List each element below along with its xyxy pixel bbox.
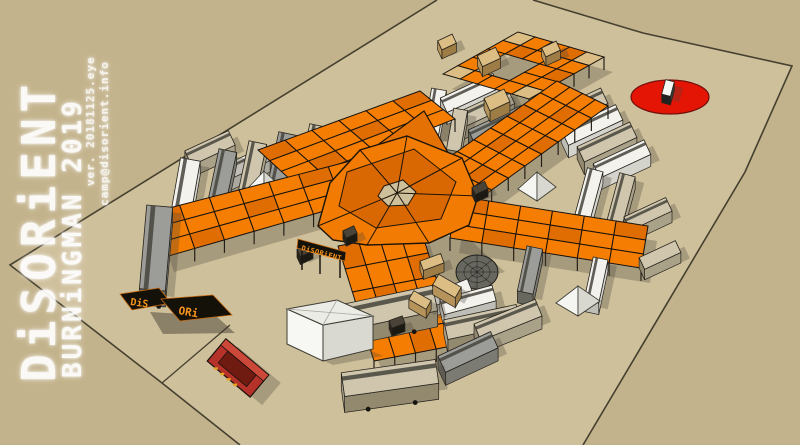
fallen-sign-text-left: DiS	[130, 296, 150, 310]
couch-side-lettering	[227, 378, 231, 380]
wheel	[413, 400, 418, 405]
watermark-version: ver. 20181125.eye	[84, 56, 97, 186]
wheel	[412, 329, 417, 334]
wheel	[366, 407, 371, 412]
site-plan-3d-render: DiSORiENTDiSORi	[0, 0, 800, 445]
watermark-email: camp@disorient.info	[98, 61, 111, 206]
disorient-camp-render: DiSORiENTDiSORi DiSORiENT BURNiNGMAN 201…	[0, 0, 800, 445]
couch-side-lettering	[214, 367, 218, 369]
couch-side-lettering	[220, 373, 224, 375]
couch-side-lettering	[233, 384, 237, 386]
